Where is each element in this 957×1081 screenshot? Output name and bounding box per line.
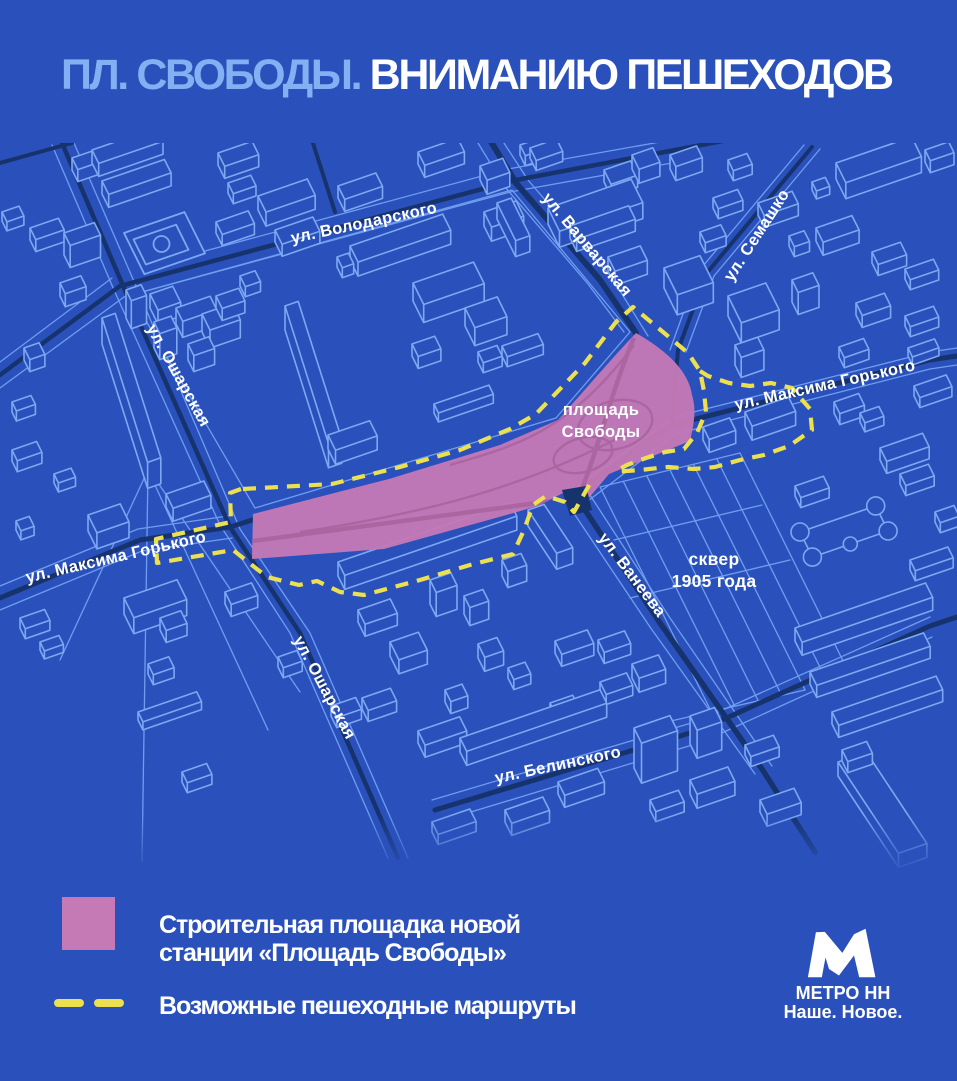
svg-text:Свободы: Свободы <box>562 423 641 441</box>
svg-text:сквер: сквер <box>689 549 740 569</box>
svg-text:МЕТРО НН: МЕТРО НН <box>796 983 891 1003</box>
svg-text:Возможные пешеходные маршруты: Возможные пешеходные маршруты <box>159 992 576 1020</box>
svg-text:1905 года: 1905 года <box>672 571 757 591</box>
svg-text:Наше. Новое.: Наше. Новое. <box>784 1002 903 1022</box>
svg-text:площадь: площадь <box>563 401 639 419</box>
svg-text:Строительная площадка новой: Строительная площадка новой <box>159 911 520 939</box>
svg-text:ПЛ. СВОБОДЫ. ВНИМАНИЮ ПЕШЕХОДО: ПЛ. СВОБОДЫ. ВНИМАНИЮ ПЕШЕХОДОВ <box>61 51 893 99</box>
svg-text:станции «Площадь Свободы»: станции «Площадь Свободы» <box>159 939 506 967</box>
